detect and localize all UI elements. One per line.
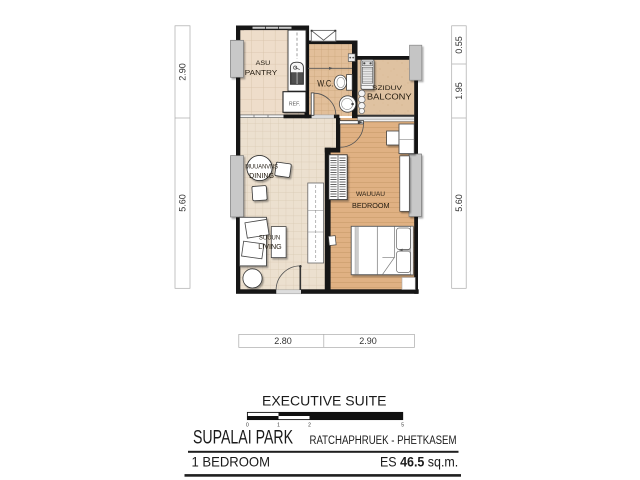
svg-text:EXECUTIVE SUITE: EXECUTIVE SUITE [262,394,387,410]
svg-text:SUPALAI PARK: SUPALAI PARK [193,427,293,449]
svg-text:REF.: REF. [289,102,300,108]
svg-text:2.90: 2.90 [359,336,377,346]
svg-text:5.60: 5.60 [454,194,464,212]
svg-text:W.C.: W.C. [317,79,333,89]
svg-text:RATCHAPHRUEK - PHETKASEM: RATCHAPHRUEK - PHETKASEM [310,433,457,447]
svg-text:MUUANVNS: MUUANVNS [245,164,278,171]
svg-text:2: 2 [308,423,311,429]
svg-text:2.90: 2.90 [178,63,188,81]
svg-text:DINING: DINING [249,171,274,180]
svg-text:0.55: 0.55 [454,36,464,54]
svg-text:5: 5 [401,423,404,429]
svg-text:SUUUN: SUUUN [259,235,281,242]
svg-text:BEDROOM: BEDROOM [352,201,390,210]
svg-text:2.80: 2.80 [274,336,292,346]
svg-text:ASU: ASU [256,60,271,67]
svg-text:1.95: 1.95 [454,82,464,100]
svg-text:1 BEDROOM: 1 BEDROOM [192,455,271,470]
svg-text:BALCONY: BALCONY [367,92,413,101]
svg-text:LIVING: LIVING [258,242,282,251]
svg-text:5.60: 5.60 [178,194,188,212]
svg-text:SZIDUV: SZIDUV [372,85,403,92]
svg-text:PANTRY: PANTRY [245,68,277,77]
svg-text:ES 46.5 sq.m.: ES 46.5 sq.m. [380,455,458,470]
svg-text:WAUUAU: WAUUAU [356,191,385,198]
